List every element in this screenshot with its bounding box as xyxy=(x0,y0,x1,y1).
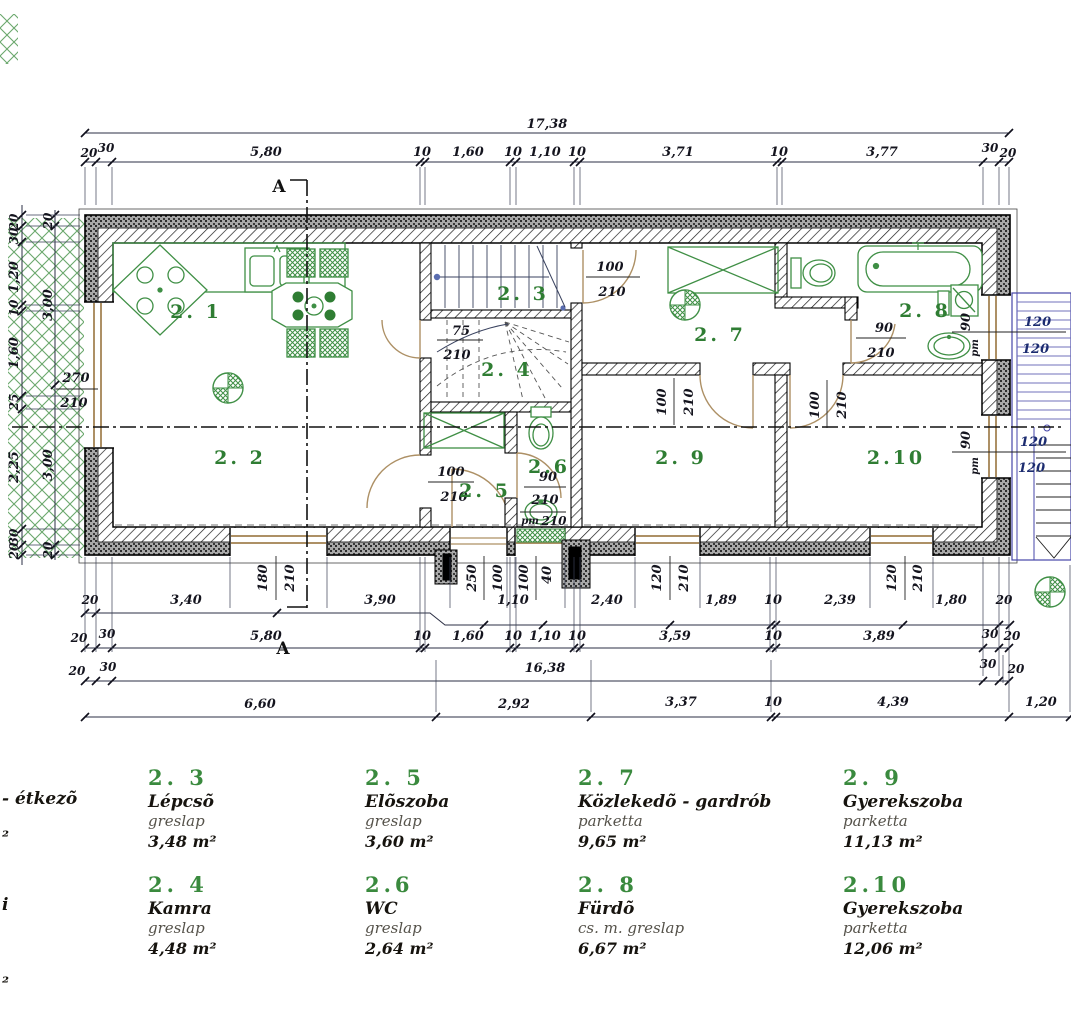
dim-label: 3,77 xyxy=(866,145,898,160)
opening-label: 210 xyxy=(540,514,567,528)
dim-label: 30 xyxy=(980,657,997,671)
legend-area: 6,67 m² xyxy=(578,939,646,958)
room-label-2-5: 2. 5 xyxy=(459,480,511,502)
legend-material: cs. m. greslap xyxy=(578,919,684,937)
opening-label: 210 xyxy=(866,346,894,361)
legend-area: 11,13 m² xyxy=(843,832,923,851)
room-label-2-6: 2.6 xyxy=(528,456,570,478)
dim-label: 5,80 xyxy=(250,629,282,644)
dim-label: 30 xyxy=(982,141,999,155)
dim-label: 10 xyxy=(770,145,788,160)
opening-label: 100 xyxy=(808,391,823,418)
dim-label: 30 xyxy=(98,141,115,155)
floor-plan-drawing: 17,38 20 30 5,80 10 1,60 10 1,10 10 3,71… xyxy=(0,0,1071,1024)
dim-label: 10 xyxy=(764,593,782,608)
dim-label: 20 xyxy=(68,664,86,678)
room-label-2-10: 2.10 xyxy=(867,447,925,469)
dim-label: 2,92 xyxy=(497,697,530,712)
dim-label: 3,71 xyxy=(662,145,694,160)
dim-label: 30 xyxy=(982,627,999,641)
dim-label: 3,89 xyxy=(863,629,895,644)
dim-label: 25 xyxy=(7,394,21,412)
dim-label: 20 xyxy=(995,593,1013,607)
legend-num: 2.10 xyxy=(843,872,910,897)
legend-name: Közlekedõ - gardrób xyxy=(577,792,771,812)
dim-label: 3,90 xyxy=(364,593,396,608)
radiator-icon xyxy=(517,529,565,542)
dim-label: 10 xyxy=(568,145,586,160)
opening-label: 210 xyxy=(59,396,87,411)
bath-toilet-icon xyxy=(791,258,835,288)
legend-name: - étkezõ xyxy=(2,789,77,809)
room-label-2-1: 2. 1 xyxy=(170,301,222,323)
legend-material: greslap xyxy=(365,919,422,937)
room-label-2-3: 2. 3 xyxy=(497,283,549,305)
opening-label: 120 xyxy=(650,564,665,591)
window-size-label: 120 xyxy=(1022,342,1049,357)
legend-material: greslap xyxy=(365,812,422,830)
legend-material: parketta xyxy=(843,812,908,830)
dim-label: 4,39 xyxy=(877,695,909,710)
survey-point-icon xyxy=(1035,577,1065,607)
opening-label: 100 xyxy=(596,260,623,275)
section-mark-top: A xyxy=(271,177,286,197)
legend-name: Fürdõ xyxy=(577,899,634,919)
dim-label: 1,60 xyxy=(452,145,484,160)
legend-area: ² xyxy=(2,827,9,846)
dim-label: 20 xyxy=(80,146,98,160)
opening-label: 100 xyxy=(491,564,506,591)
legend-area: 12,06 m² xyxy=(843,939,923,958)
dim-label: 17,38 xyxy=(527,117,568,132)
opening-label: 210 xyxy=(911,564,926,592)
room-label-2-8: 2. 8 xyxy=(899,300,951,322)
opening-label: 180 xyxy=(256,564,271,591)
opening-label: 270 xyxy=(61,371,89,386)
dim-label: 3,00 xyxy=(41,449,56,481)
legend-material: parketta xyxy=(578,812,643,830)
dim-label: 10 xyxy=(413,629,431,644)
legend-name: Gyerekszoba xyxy=(843,792,963,812)
dim-label: 20 xyxy=(41,212,55,230)
survey-point-icon xyxy=(213,373,243,403)
legend-num: 2.6 xyxy=(365,872,414,897)
legend-name: Gyerekszoba xyxy=(843,899,963,919)
dim-label: 5,80 xyxy=(250,145,282,160)
dim-label: 1,60 xyxy=(7,337,22,369)
dim-label: 30 xyxy=(99,627,116,641)
plot-hatch-corner xyxy=(0,14,18,64)
opening-label: 90 xyxy=(959,313,974,331)
window-size-label: 120 xyxy=(1020,435,1047,450)
floor-plan-page: 17,38 20 30 5,80 10 1,60 10 1,10 10 3,71… xyxy=(0,0,1071,1024)
dim-label: 20 xyxy=(1007,662,1025,676)
dim-label: 1,10 xyxy=(529,145,561,160)
dim-label: 20 xyxy=(7,542,21,560)
opening-label: 40 xyxy=(540,566,555,584)
survey-point-icon xyxy=(670,290,700,320)
dim-label: 1,60 xyxy=(452,629,484,644)
bath-basin-icon xyxy=(928,333,970,359)
legend-area: 3,48 m² xyxy=(148,832,216,851)
legend-name: Kamra xyxy=(147,899,212,919)
opening-label: pm xyxy=(970,339,981,357)
legend-name: Lépcsõ xyxy=(147,792,214,812)
opening-label: 100 xyxy=(437,465,464,480)
wardrobe-hall-icon xyxy=(424,413,504,448)
legend-name: i xyxy=(2,895,8,915)
legend-area: ² xyxy=(2,973,9,992)
opening-label: 210 xyxy=(442,348,470,363)
dim-label: 10 xyxy=(504,145,522,160)
dim-label: 10 xyxy=(504,629,522,644)
opening-label: pm xyxy=(521,516,539,527)
legend-area: 4,48 m² xyxy=(148,939,216,958)
opening-label: pm xyxy=(970,457,981,475)
dim-label: 20 xyxy=(81,593,99,607)
opening-label: 210 xyxy=(677,564,692,592)
opening-label: 210 xyxy=(597,285,625,300)
dim-label: 10 xyxy=(7,299,21,316)
room-label-2-9: 2. 9 xyxy=(655,447,707,469)
dim-label: 2,39 xyxy=(823,593,856,608)
legend-area: 2,64 m² xyxy=(364,939,433,958)
legend-name: WC xyxy=(365,899,398,919)
legend-num: 2. 8 xyxy=(578,872,638,897)
dim-label: 1,10 xyxy=(529,629,561,644)
opening-label: 210 xyxy=(283,564,298,592)
dim-label: 10 xyxy=(764,695,782,710)
dim-label: 2,40 xyxy=(590,593,623,608)
dim-label: 20 xyxy=(999,146,1017,160)
room-label-2-2: 2. 2 xyxy=(214,447,266,469)
dim-label: 10 xyxy=(764,629,782,644)
dim-label: 1,20 xyxy=(7,261,22,293)
dim-label: 3,40 xyxy=(170,593,202,608)
wc-toilet-icon xyxy=(529,407,553,449)
dim-label: 1,89 xyxy=(705,593,737,608)
window-size-label: 120 xyxy=(1018,461,1045,476)
dim-label: 1,20 xyxy=(1025,695,1057,710)
legend-material: greslap xyxy=(148,919,205,937)
legend-num: 2. 9 xyxy=(843,765,903,790)
dim-label: 2,25 xyxy=(7,451,22,484)
dim-label: 30 xyxy=(7,227,21,244)
legend-num: 2. 4 xyxy=(148,872,208,897)
opening-label: 90 xyxy=(875,321,893,336)
window-size-label: 120 xyxy=(1024,315,1051,330)
dim-label: 20 xyxy=(70,631,88,645)
opening-label: 100 xyxy=(517,564,532,591)
legend-area: 3,60 m² xyxy=(365,832,433,851)
opening-label: 120 xyxy=(885,564,900,591)
legend: - étkezõ ² i ² 2. 3 Lépcsõ greslap 3,48 … xyxy=(2,765,963,992)
dim-label: 30 xyxy=(100,660,117,674)
dim-label: 16,38 xyxy=(525,661,566,676)
legend-material: parketta xyxy=(843,919,908,937)
opening-label: 90 xyxy=(959,431,974,449)
legend-num: 2. 3 xyxy=(148,765,208,790)
dim-label: 10 xyxy=(413,145,431,160)
dim-label: 10 xyxy=(568,629,586,644)
dim-label: 20 xyxy=(41,541,55,559)
dim-label: 1,10 xyxy=(497,593,529,608)
legend-area: 9,65 m² xyxy=(578,832,646,851)
legend-material: greslap xyxy=(148,812,205,830)
dim-label: 6,60 xyxy=(244,697,276,712)
room-label-2-4: 2. 4 xyxy=(481,359,533,381)
dim-label: 1,80 xyxy=(935,593,967,608)
opening-label: 210 xyxy=(530,493,558,508)
opening-label: 210 xyxy=(682,388,697,416)
opening-label: 100 xyxy=(655,388,670,415)
opening-label: 250 xyxy=(465,564,480,592)
dim-label: 3,00 xyxy=(41,289,56,321)
legend-name: Elõszoba xyxy=(364,792,449,812)
wardrobe-corridor-icon xyxy=(668,247,778,293)
opening-label: 210 xyxy=(835,391,850,419)
dim-label: 20 xyxy=(1003,629,1021,643)
dim-label: 3,59 xyxy=(659,629,691,644)
dim-label: 3,37 xyxy=(665,695,697,710)
opening-label: 75 xyxy=(452,324,470,339)
room-label-2-7: 2. 7 xyxy=(694,324,746,346)
legend-num: 2. 7 xyxy=(578,765,638,790)
legend-num: 2. 5 xyxy=(365,765,425,790)
